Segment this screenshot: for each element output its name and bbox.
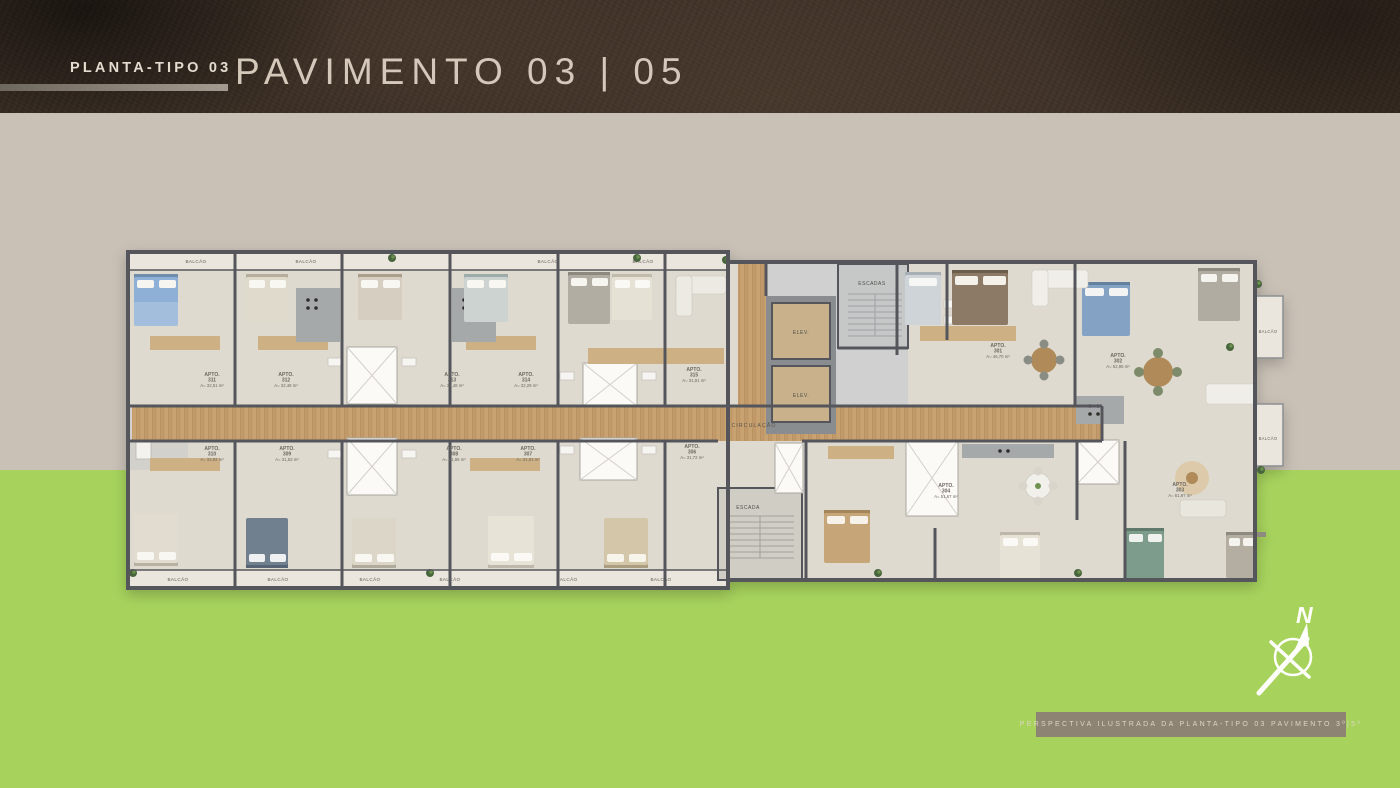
bed-315b bbox=[612, 274, 652, 320]
floorplan-body: APTO.311A= 32,51 m² APTO.312A= 32,48 m² … bbox=[128, 252, 1283, 588]
sofa-302 bbox=[1206, 384, 1256, 404]
balcony-label: BALCÃO bbox=[632, 258, 653, 264]
stairs-lower bbox=[718, 488, 802, 580]
compass: N bbox=[1259, 602, 1313, 693]
circulation-label: CIRCULAÇÃO bbox=[731, 422, 776, 429]
balcony-label: BALCÃO bbox=[1259, 329, 1278, 334]
balcony-label: BALCÃO bbox=[359, 576, 380, 582]
bed-304b bbox=[1126, 528, 1164, 579]
elevator-label: ELEV. bbox=[793, 393, 809, 399]
footer-caption: PERSPECTIVA ILUSTRADA DA PLANTA-TIPO 03 … bbox=[1036, 712, 1346, 737]
balcony-label: BALCÃO bbox=[556, 576, 577, 582]
stairs-lower-label: ESCADA bbox=[736, 505, 760, 511]
bed-314 bbox=[464, 274, 508, 322]
balcony-label: BALCÃO bbox=[439, 576, 460, 582]
balcony-label: BALCÃO bbox=[1259, 436, 1278, 441]
sofa-303 bbox=[1180, 500, 1226, 517]
bed-301a bbox=[905, 272, 941, 325]
bed-307 bbox=[488, 516, 534, 568]
north-letter: N bbox=[1296, 602, 1313, 628]
balcony-label: BALCÃO bbox=[185, 258, 206, 264]
balcony-label: BALCÃO bbox=[537, 258, 558, 264]
bed-309 bbox=[246, 518, 288, 568]
bed-301b bbox=[952, 270, 1008, 325]
bed-306 bbox=[604, 518, 648, 568]
balcony-label: BALCÃO bbox=[267, 576, 288, 582]
bed-302b bbox=[1198, 268, 1240, 321]
bed-302a bbox=[1082, 282, 1130, 336]
bed-308 bbox=[352, 518, 396, 568]
bed-312 bbox=[246, 274, 288, 322]
bed-315a bbox=[568, 272, 610, 324]
floorplan: APTO.311A= 32,51 m² APTO.312A= 32,48 m² … bbox=[0, 0, 1400, 788]
bed-310 bbox=[134, 514, 178, 566]
balcony-label: BALCÃO bbox=[295, 258, 316, 264]
balcony-label: BALCÃO bbox=[650, 576, 671, 582]
bed-311 bbox=[134, 274, 178, 326]
balcony-label: BALCÃO bbox=[167, 576, 188, 582]
bed-313 bbox=[358, 274, 402, 320]
bed-303 bbox=[1226, 532, 1266, 578]
stairs-upper-label: ESCADAS bbox=[858, 281, 886, 287]
elevator-label: ELEV. bbox=[793, 330, 809, 336]
bed-304a bbox=[1000, 532, 1040, 578]
bed-center bbox=[824, 510, 870, 563]
elevator-core bbox=[766, 296, 836, 434]
